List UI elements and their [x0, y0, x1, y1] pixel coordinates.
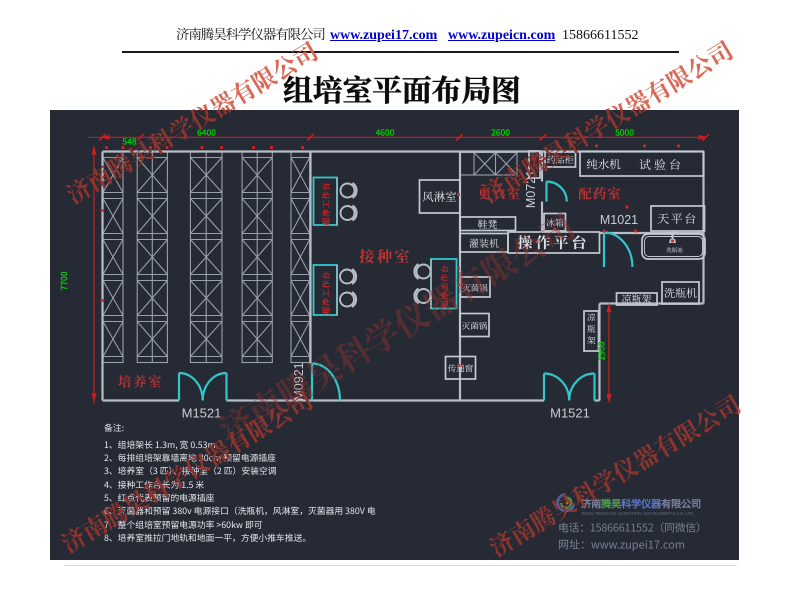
- svg-text:7700: 7700: [58, 271, 70, 290]
- svg-text:548: 548: [121, 135, 136, 147]
- svg-text:济南腾昊科学仪器有限公司: 济南腾昊科学仪器有限公司: [581, 496, 701, 511]
- svg-text:配药室: 配药室: [578, 182, 622, 202]
- svg-text:M1521: M1521: [550, 405, 590, 420]
- svg-text:洗瓶机: 洗瓶机: [664, 285, 697, 301]
- svg-text:4600: 4600: [374, 126, 394, 138]
- svg-text:传递窗: 传递窗: [447, 362, 473, 374]
- svg-text:培养室: 培养室: [118, 370, 163, 390]
- svg-text:M0921: M0921: [292, 362, 306, 400]
- svg-text:天平台: 天平台: [657, 210, 698, 227]
- svg-text:药品柜: 药品柜: [546, 153, 573, 166]
- svg-text:试验台: 试验台: [638, 156, 683, 173]
- svg-text:瓶: 瓶: [586, 323, 595, 335]
- svg-text:操作平台: 操作平台: [517, 232, 589, 253]
- svg-text:M1521: M1521: [181, 405, 221, 420]
- svg-text:接种室: 接种室: [359, 245, 412, 267]
- svg-text:凉: 凉: [586, 311, 595, 323]
- svg-text:洗瓶池: 洗瓶池: [666, 246, 683, 254]
- svg-text:冰箱: 冰箱: [545, 216, 563, 229]
- svg-text:6400: 6400: [197, 126, 216, 138]
- svg-text:2900: 2900: [595, 341, 607, 360]
- svg-text:灭菌锅: 灭菌锅: [461, 320, 487, 332]
- svg-text:超净工作台: 超净工作台: [320, 270, 331, 314]
- svg-text:灭菌锅: 灭菌锅: [462, 282, 488, 294]
- svg-text:电话：15866611552（同微信）: 电话：15866611552（同微信）: [558, 520, 707, 536]
- svg-text:纯水机: 纯水机: [586, 156, 621, 172]
- svg-text:M0721: M0721: [524, 169, 538, 207]
- svg-text:2600: 2600: [491, 126, 510, 138]
- svg-text:超净工作台: 超净工作台: [439, 264, 450, 308]
- svg-text:更衣室: 更衣室: [477, 182, 521, 202]
- svg-text:M1021: M1021: [599, 213, 637, 227]
- svg-text:鞋凳: 鞋凳: [477, 216, 497, 231]
- svg-text:超净工作台: 超净工作台: [320, 181, 331, 225]
- svg-text:架: 架: [586, 334, 595, 346]
- svg-text:5000: 5000: [614, 126, 634, 138]
- svg-text:JINAN TENGHAO SCIENTIFIC INSTR: JINAN TENGHAO SCIENTIFIC INSTRUMENTS CO.…: [581, 511, 695, 516]
- svg-text:网址：www.zupei17.com: 网址：www.zupei17.com: [558, 537, 685, 553]
- svg-text:凉瓶架: 凉瓶架: [621, 290, 651, 305]
- svg-text:风淋室: 风淋室: [422, 189, 457, 205]
- svg-text:灌装机: 灌装机: [469, 235, 499, 250]
